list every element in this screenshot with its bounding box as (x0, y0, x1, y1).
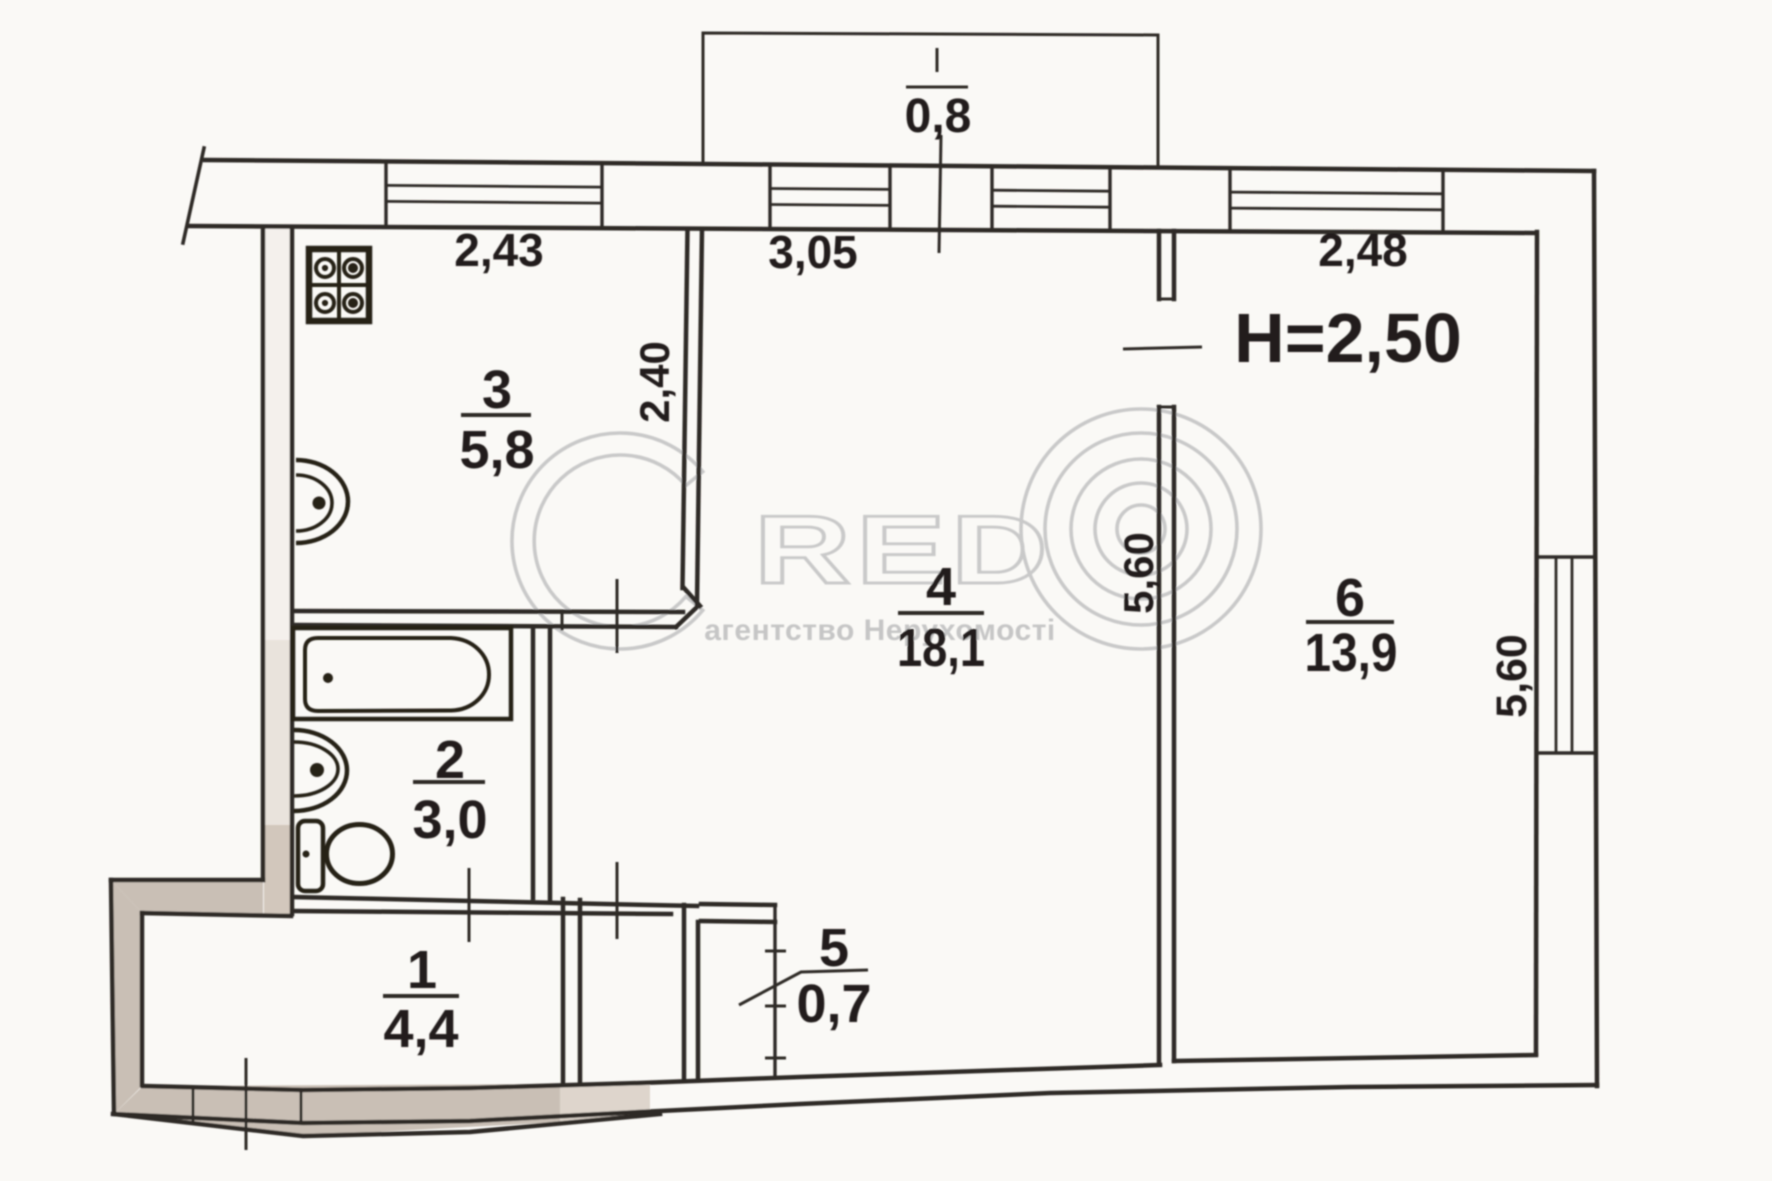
svg-text:3: 3 (482, 360, 512, 420)
svg-text:1: 1 (407, 940, 437, 1000)
svg-text:13,9: 13,9 (1305, 623, 1398, 683)
svg-text:5: 5 (819, 918, 849, 978)
svg-text:2,43: 2,43 (454, 224, 544, 276)
svg-text:4: 4 (926, 557, 956, 617)
svg-text:4,4: 4,4 (383, 999, 458, 1059)
svg-text:3,0: 3,0 (412, 790, 487, 850)
svg-text:RED: RED (754, 495, 1053, 604)
svg-text:6: 6 (1335, 568, 1365, 628)
svg-text:5,8: 5,8 (459, 420, 534, 480)
svg-text:0,8: 0,8 (905, 90, 972, 143)
svg-text:агентство Нерухомості: агентство Нерухомості (704, 614, 1056, 647)
svg-text:5,60: 5,60 (1488, 634, 1536, 718)
svg-text:18,1: 18,1 (897, 618, 985, 678)
svg-text:5,60: 5,60 (1115, 532, 1162, 614)
svg-text:H=2,50: H=2,50 (1234, 299, 1462, 377)
svg-text:3,05: 3,05 (768, 226, 858, 278)
svg-text:2,48: 2,48 (1318, 224, 1408, 276)
svg-text:0,7: 0,7 (796, 974, 871, 1034)
svg-text:2,40: 2,40 (631, 341, 678, 423)
